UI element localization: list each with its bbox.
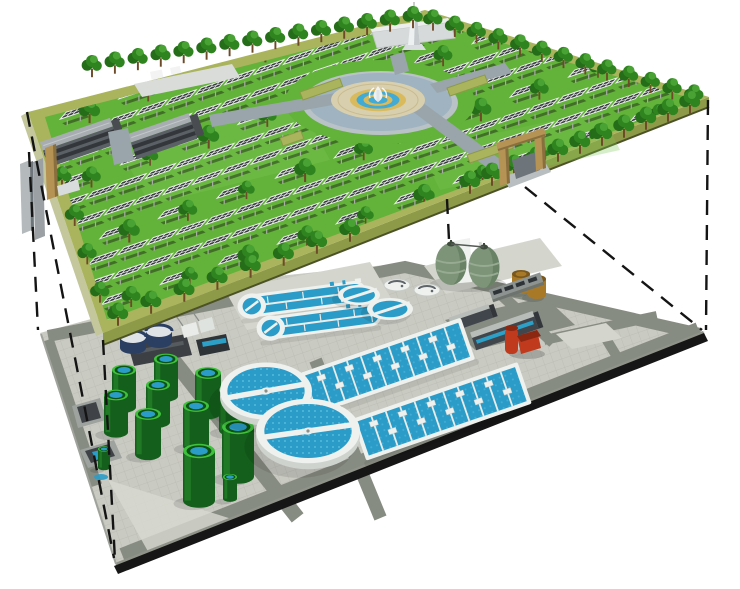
solar-panel: [675, 48, 705, 69]
tree: [150, 45, 170, 67]
solar-panel: [585, 12, 615, 33]
solar-panel: [603, 28, 633, 49]
solar-panel: [556, 22, 586, 43]
tree: [82, 55, 102, 77]
solar-panel: [632, 18, 662, 39]
solar-panel: [412, 0, 442, 4]
egg-digesters: [430, 238, 506, 292]
tree: [549, 4, 571, 28]
solar-panel: [627, 42, 657, 63]
tree: [242, 31, 262, 53]
tree: [265, 27, 285, 49]
tree: [646, 37, 668, 61]
tree: [173, 41, 193, 63]
solar-panel: [459, 0, 489, 10]
cutaway-illustration: [0, 0, 740, 589]
covered-oval-tank: [384, 279, 410, 291]
tree: [219, 34, 239, 56]
covered-oval-tank: [414, 284, 440, 296]
tree: [430, 0, 452, 2]
solar-panel: [531, 8, 561, 29]
tree: [105, 52, 125, 74]
tree: [128, 48, 148, 70]
projection-line: [706, 100, 708, 330]
tree: [196, 38, 216, 60]
solar-panel: [484, 3, 514, 24]
solar-panel: [513, 0, 543, 13]
solar-panel: [542, 0, 572, 3]
illustration-canvas: [0, 0, 740, 589]
